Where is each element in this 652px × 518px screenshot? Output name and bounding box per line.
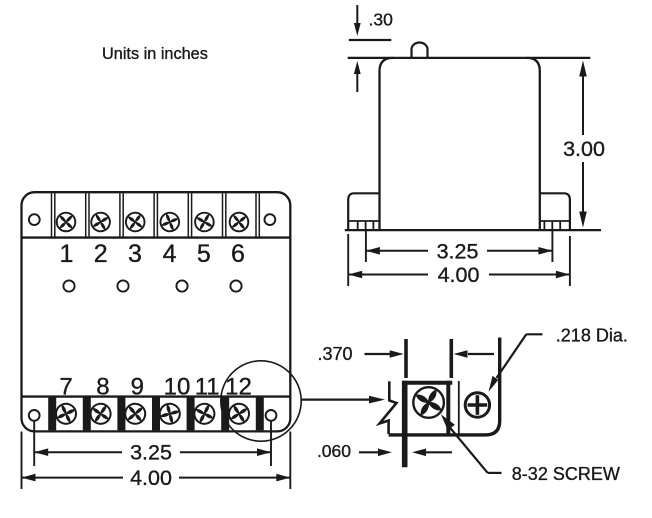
- svg-text:.30: .30: [369, 10, 394, 30]
- svg-text:6: 6: [231, 240, 245, 268]
- svg-text:.218 Dia.: .218 Dia.: [556, 325, 628, 345]
- svg-text:.370: .370: [317, 344, 352, 364]
- svg-text:3.00: 3.00: [563, 137, 605, 161]
- svg-text:5: 5: [197, 240, 211, 268]
- svg-text:1: 1: [60, 240, 74, 268]
- svg-text:3.25: 3.25: [437, 239, 479, 263]
- svg-text:4: 4: [163, 240, 177, 268]
- svg-text:2: 2: [94, 240, 108, 268]
- svg-text:3: 3: [128, 240, 142, 268]
- svg-text:Units in inches: Units in inches: [102, 45, 208, 63]
- svg-text:3.25: 3.25: [130, 441, 172, 465]
- svg-text:4.00: 4.00: [130, 466, 172, 490]
- svg-text:8-32 SCREW: 8-32 SCREW: [512, 464, 620, 484]
- svg-text:.060: .060: [317, 441, 351, 461]
- svg-text:4.00: 4.00: [438, 263, 480, 287]
